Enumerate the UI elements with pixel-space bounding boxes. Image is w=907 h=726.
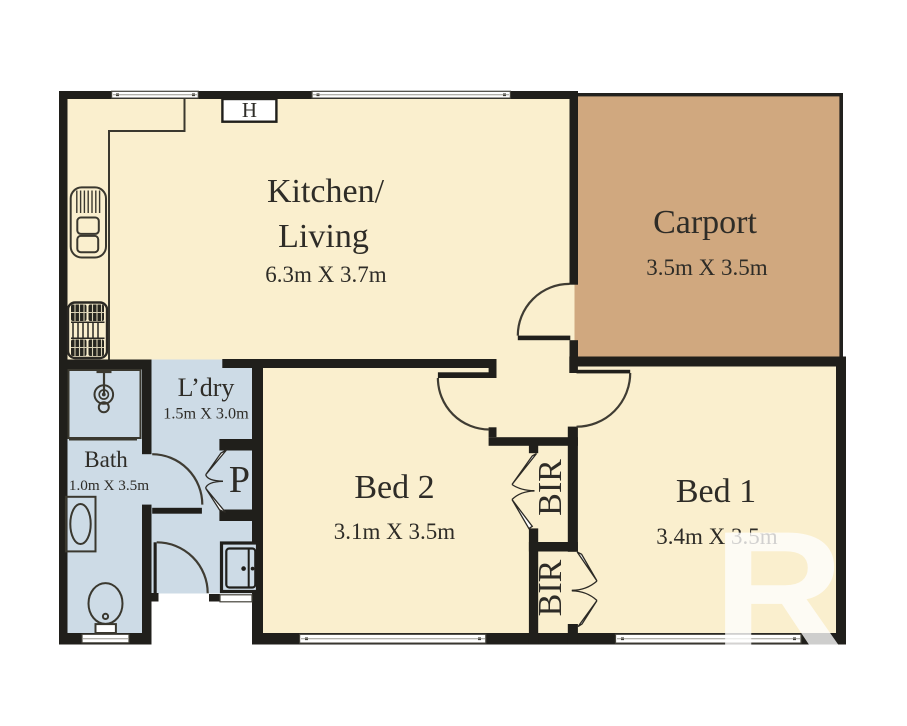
- svg-text:Kitchen/: Kitchen/: [267, 173, 385, 210]
- svg-text:Bed 2: Bed 2: [354, 469, 434, 506]
- svg-text:BIR: BIR: [532, 559, 569, 616]
- svg-text:6.3m X 3.7m: 6.3m X 3.7m: [265, 262, 387, 287]
- svg-text:H: H: [242, 98, 257, 122]
- svg-text:BIR: BIR: [532, 459, 569, 516]
- svg-text:Living: Living: [278, 218, 369, 255]
- svg-text:1.5m X 3.0m: 1.5m X 3.0m: [163, 405, 249, 423]
- svg-text:L’dry: L’dry: [178, 373, 235, 402]
- svg-text:P: P: [229, 459, 250, 501]
- svg-text:3.1m X 3.5m: 3.1m X 3.5m: [334, 519, 456, 544]
- svg-text:1.0m X 3.5m: 1.0m X 3.5m: [69, 477, 149, 494]
- svg-text:R: R: [713, 498, 844, 684]
- svg-text:Carport: Carport: [653, 204, 757, 241]
- svg-text:3.5m X 3.5m: 3.5m X 3.5m: [646, 255, 768, 280]
- svg-text:Bath: Bath: [84, 447, 128, 472]
